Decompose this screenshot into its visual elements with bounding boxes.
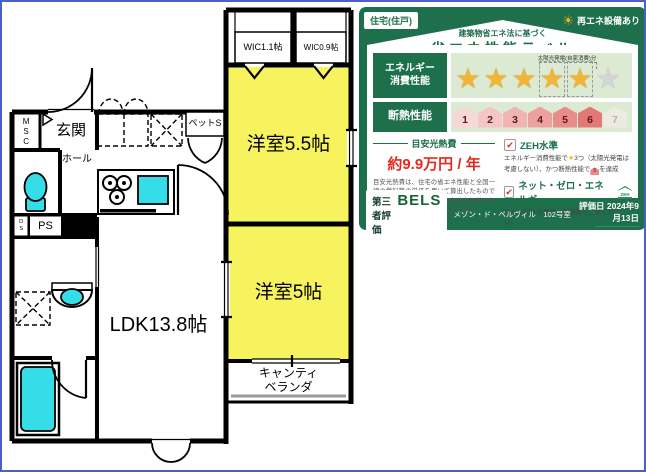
energy-row-label: エネルギー 消費性能 xyxy=(373,53,447,98)
star-3: ★ xyxy=(510,60,538,98)
third-party-label: 第三者評価 xyxy=(372,194,392,236)
insulation-level-5: 5 xyxy=(553,107,577,128)
energy-consumption-row: エネルギー 消費性能 太陽光発電(自家消費)分 ★★★★★★ xyxy=(373,53,632,98)
room-label-wic2: WIC0.9帖 xyxy=(296,33,346,62)
room-label-entrance: 玄関 xyxy=(46,114,96,148)
insulation-level-2: 2 xyxy=(478,107,502,128)
zeh-house-icon: ZEH xyxy=(618,186,632,199)
star-1: ★ xyxy=(454,60,482,98)
renewable-text: 再エネ設備あり xyxy=(577,14,640,27)
refrigerator-space xyxy=(151,114,182,146)
housing-type-badge: 住宅(住戸) xyxy=(364,12,418,29)
room-label-pet: ペットS xyxy=(186,112,224,134)
evaluation-date: 評価日 2024年9月13日 xyxy=(577,200,639,224)
cost-amount: 約9.9万円 / 年 xyxy=(373,153,495,174)
hall-door xyxy=(178,165,228,215)
energy-label-card: 住宅(住戸) ☀ 再エネ設備あり 建築物省エネ法に基づく 省エネ性能ラベル エネ… xyxy=(359,7,646,230)
room-label-ldk: LDK13.8帖 xyxy=(95,305,222,345)
checkbox-icon: ✔ xyxy=(504,139,516,151)
building-name: メゾン・ド・ベルヴィル 102号室 xyxy=(453,209,571,220)
washbasin xyxy=(52,283,92,307)
insulation-level-6: 6 xyxy=(578,107,602,128)
room-label-msc: MSC xyxy=(15,114,37,150)
star-4: ★ xyxy=(538,60,566,98)
insulation-badges: 1234567 xyxy=(451,102,632,132)
evaluation-code: ――――――――――― xyxy=(577,224,639,228)
zeh-level-row: ✔ ZEH水準 xyxy=(504,138,632,152)
insulation-level-4: 4 xyxy=(528,107,552,128)
star-row: ★★★★★★ xyxy=(454,60,622,98)
room-label-ps: PS xyxy=(30,216,61,236)
star-2: ★ xyxy=(482,60,510,98)
cost-heading: 目安光熱費 xyxy=(373,137,495,150)
bottom-door xyxy=(152,440,190,463)
kitchen-counter xyxy=(98,170,174,214)
insulation-level-7: 7 xyxy=(603,107,627,128)
insulation-row: 断熱性能 1234567 xyxy=(373,102,632,132)
kitchen-sink xyxy=(138,176,168,204)
zeh-level-label: ZEH水準 xyxy=(520,138,558,152)
bels-logo: BELS xyxy=(397,192,441,209)
insulation-row-label: 断熱性能 xyxy=(373,102,447,132)
checkbox-icon: ✔ xyxy=(504,186,514,198)
toilet-fixture xyxy=(25,173,47,211)
renewable-equipment-note: ☀ 再エネ設備あり xyxy=(562,14,640,27)
room-label-ds: DS xyxy=(15,216,28,236)
insulation-level-1: 1 xyxy=(453,107,477,128)
insulation-level-3: 3 xyxy=(503,107,527,128)
label-body: エネルギー 消費性能 太陽光発電(自家消費)分 ★★★★★★ 断熱性能 1234… xyxy=(367,45,638,198)
veranda-line1: キャンティ xyxy=(259,367,318,381)
star-5: ★ xyxy=(566,60,594,98)
bathtub xyxy=(17,363,59,435)
room-label-wic1: WIC1.1帖 xyxy=(235,33,291,62)
room-label-hall: ホール xyxy=(56,153,98,167)
evaluation-info: 評価日 2024年9月13日 ――――――――――― xyxy=(577,200,639,228)
kitchen-cabinets xyxy=(98,99,148,146)
label-footer: 第三者評価 BELS メゾン・ド・ベルヴィル 102号室 評価日 2024年9月… xyxy=(359,198,646,230)
star-6: ★ xyxy=(594,60,622,98)
page: WIC1.1帖 WIC0.9帖 洋室5.5帖 洋室5帖 LDK13.8帖 玄関 … xyxy=(0,0,646,472)
room-label-veranda: キャンティ ベランダ xyxy=(228,364,349,398)
room-label-bedroom2: 洋室5帖 xyxy=(228,226,349,359)
bels-box: 第三者評価 BELS xyxy=(366,190,447,238)
washer-space xyxy=(16,292,50,325)
sun-icon: ☀ xyxy=(562,14,574,27)
room-label-bedroom1: 洋室5.5帖 xyxy=(228,67,349,222)
mini-house-icon: 5 xyxy=(590,167,599,175)
star-strip: 太陽光発電(自家消費)分 ★★★★★★ xyxy=(451,53,632,98)
veranda-line2: ベランダ xyxy=(264,381,312,395)
zeh-level-note: エネルギー消費性能で★3つ（太陽光発電は考慮しない）、かつ断熱性能で5を達成 xyxy=(504,154,632,175)
